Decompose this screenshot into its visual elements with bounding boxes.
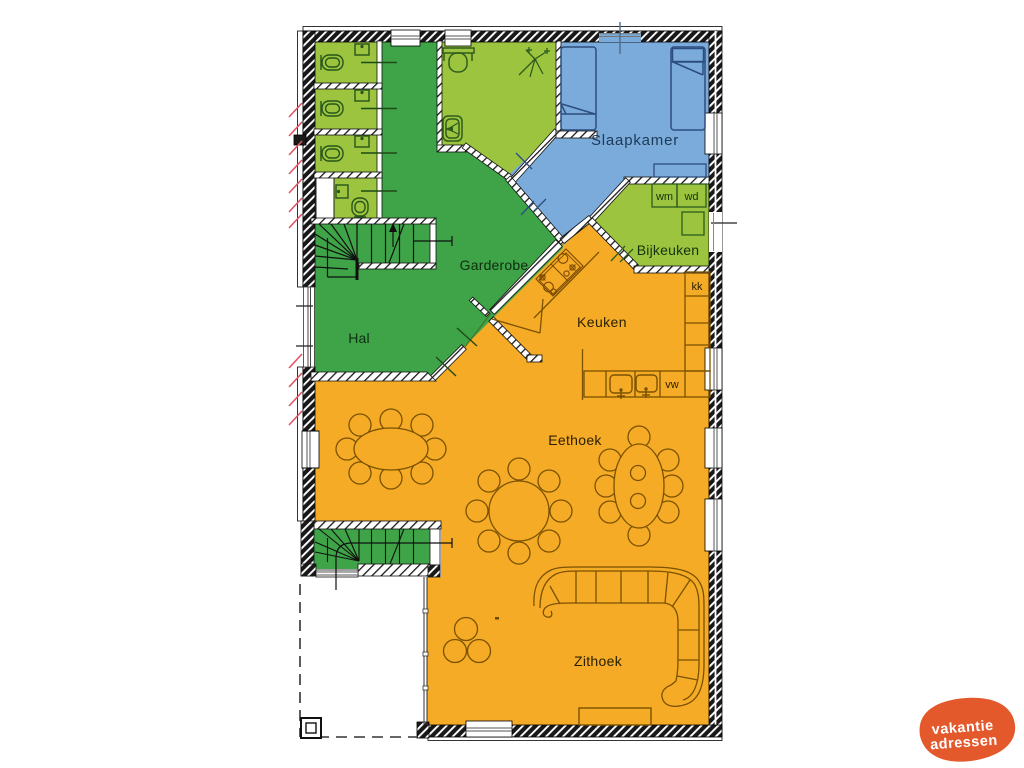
svg-text:Bijkeuken: Bijkeuken	[637, 242, 700, 258]
svg-text:Keuken: Keuken	[577, 314, 627, 330]
svg-text:vw: vw	[665, 379, 679, 391]
svg-text:Eethoek: Eethoek	[548, 432, 602, 448]
svg-text:kk: kk	[692, 281, 704, 293]
svg-text:Hal: Hal	[348, 330, 370, 346]
svg-text:wd: wd	[683, 191, 698, 203]
svg-text:Slaapkamer: Slaapkamer	[591, 132, 679, 149]
svg-text:Garderobe: Garderobe	[460, 257, 529, 273]
svg-text:wm: wm	[655, 191, 673, 203]
svg-text:Zithoek: Zithoek	[574, 653, 623, 669]
